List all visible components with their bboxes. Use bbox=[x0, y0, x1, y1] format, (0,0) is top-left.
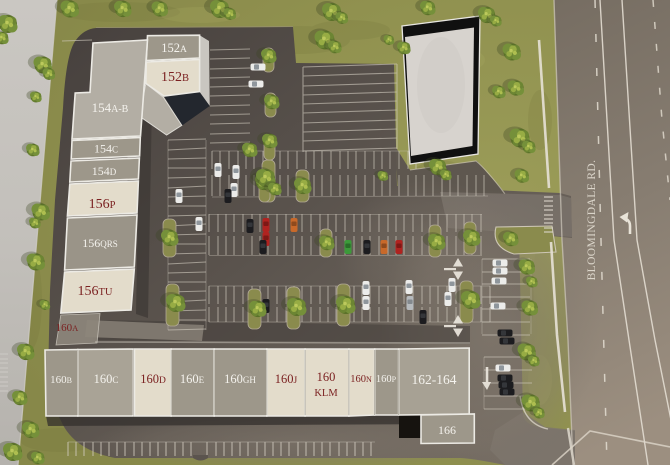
svg-text:154C: 154C bbox=[94, 142, 118, 156]
svg-text:KLM: KLM bbox=[314, 388, 338, 399]
svg-text:154D: 154D bbox=[92, 164, 117, 178]
svg-text:160E: 160E bbox=[180, 372, 205, 386]
svg-text:166: 166 bbox=[438, 423, 456, 437]
svg-text:160A: 160A bbox=[56, 322, 80, 334]
svg-text:156P: 156P bbox=[89, 197, 116, 212]
svg-text:160: 160 bbox=[317, 370, 336, 384]
svg-text:160N: 160N bbox=[350, 374, 372, 385]
svg-text:160GH: 160GH bbox=[224, 372, 256, 386]
svg-text:160P: 160P bbox=[376, 374, 397, 385]
svg-text:BLOOMINGDALE RD.: BLOOMINGDALE RD. bbox=[586, 160, 598, 281]
svg-text:156QRS: 156QRS bbox=[82, 236, 118, 250]
svg-text:152B: 152B bbox=[161, 70, 189, 85]
svg-text:160B: 160B bbox=[50, 374, 72, 386]
svg-text:156TU: 156TU bbox=[78, 284, 113, 299]
svg-text:160C: 160C bbox=[94, 372, 119, 386]
svg-text:162-164: 162-164 bbox=[412, 372, 457, 387]
